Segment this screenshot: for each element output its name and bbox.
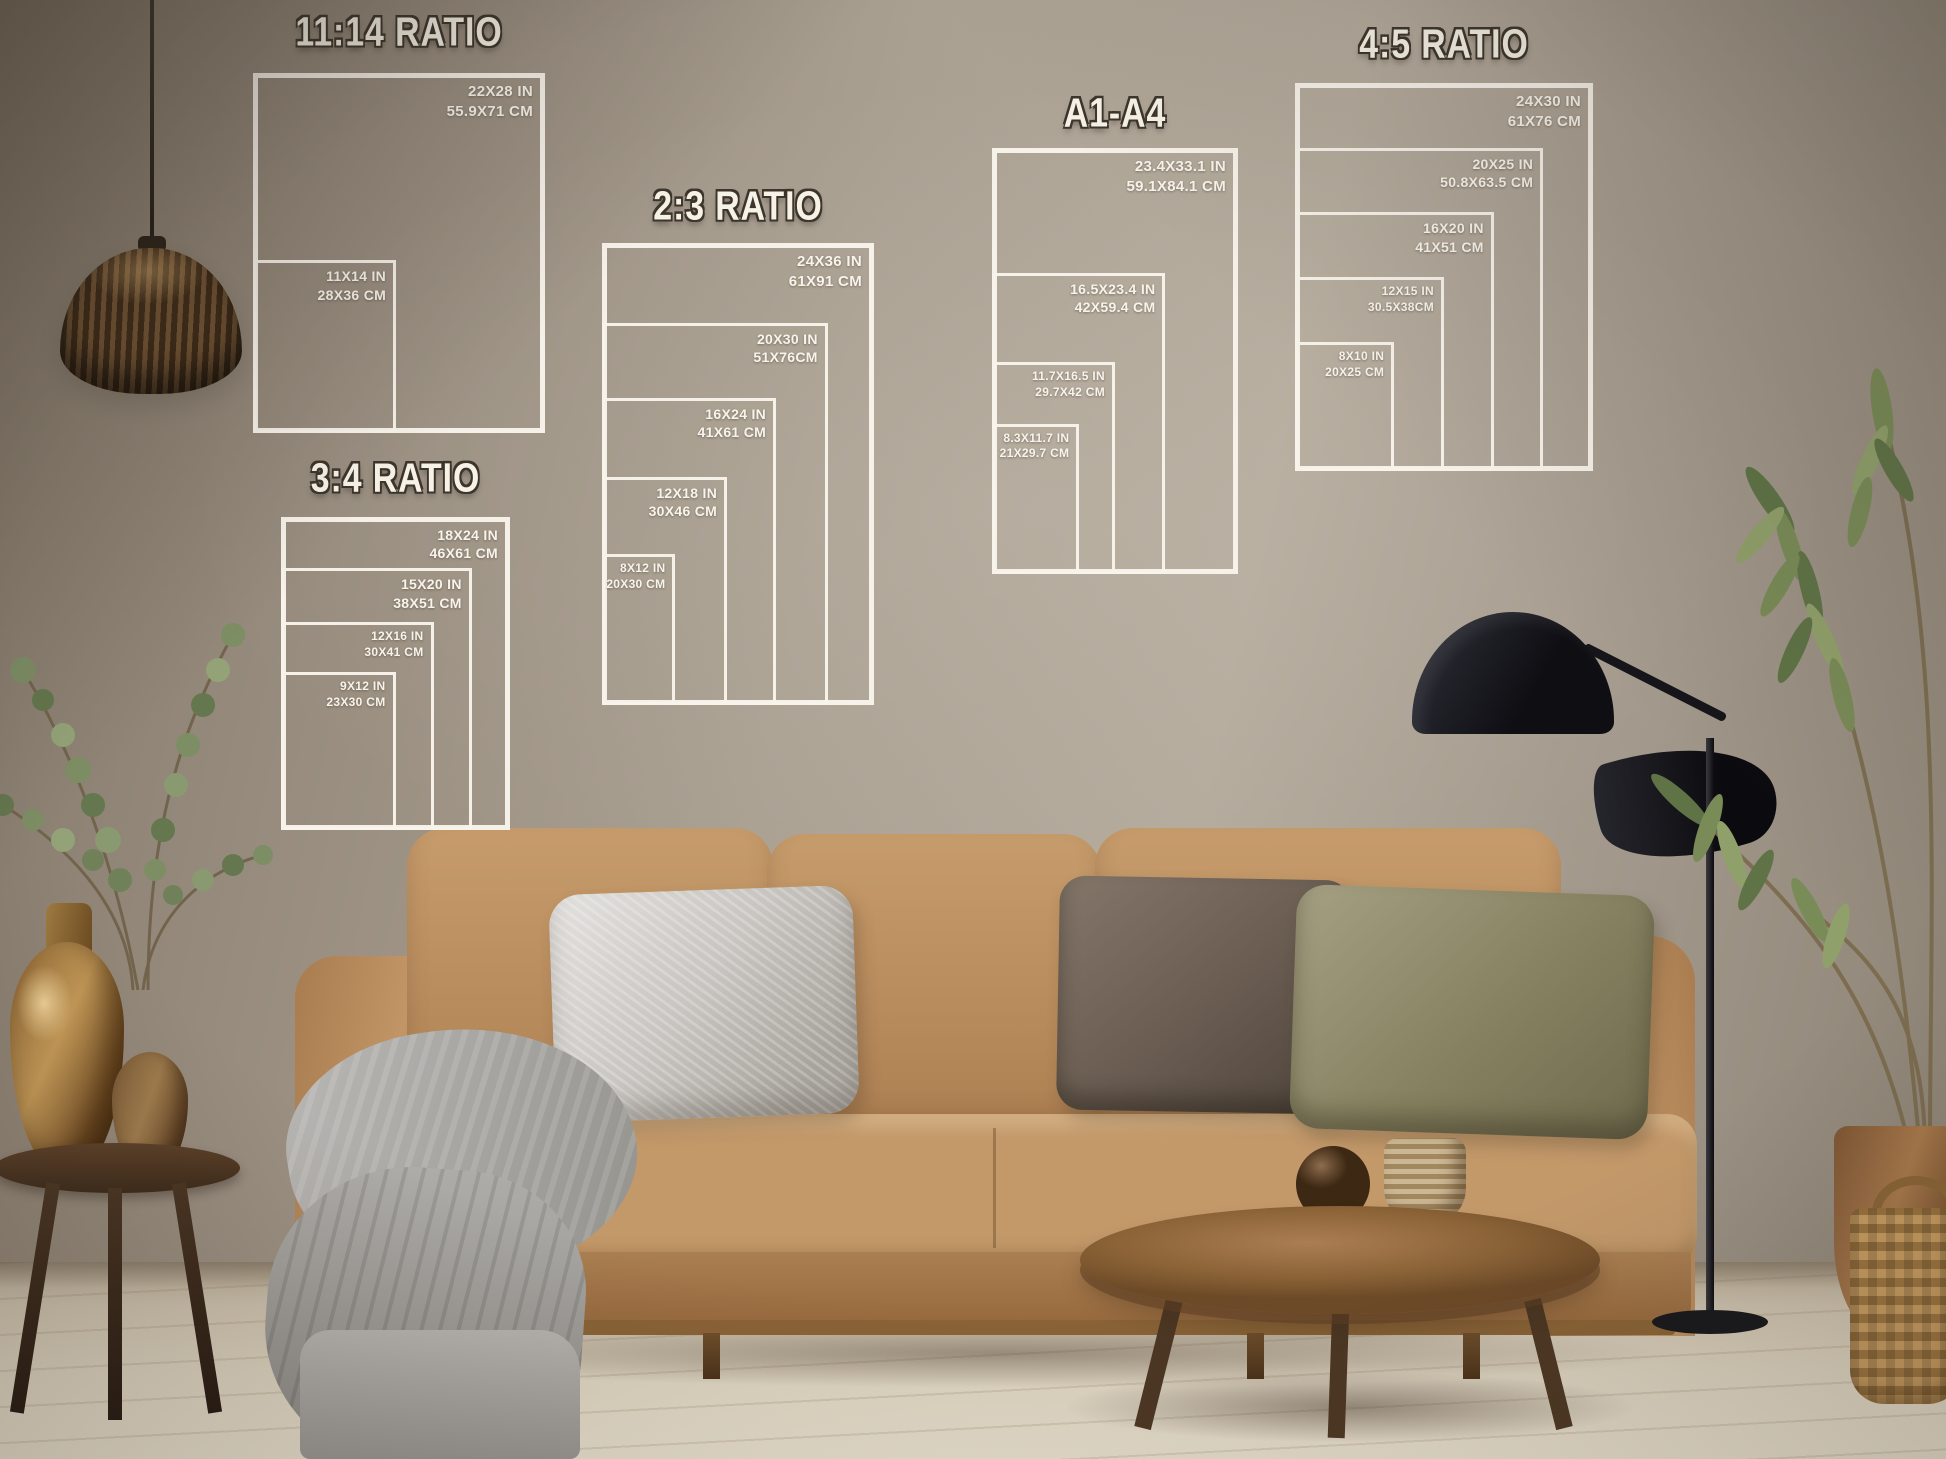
size-cm: 41X61 CM — [698, 423, 767, 441]
size-label: 8X10 IN 20X25 CM — [1325, 349, 1384, 381]
size-label: 12X18 IN 30X46 CM — [649, 484, 718, 521]
chart-title: 2:3 RATIO — [554, 182, 922, 229]
size-in: 20X25 IN — [1440, 155, 1533, 173]
plant-left — [0, 540, 278, 990]
size-in: 20X30 IN — [753, 330, 817, 348]
size-cm: 46X61 CM — [429, 544, 498, 562]
size-cm: 30X46 CM — [649, 502, 718, 520]
size-in: 23.4X33.1 IN — [1127, 157, 1227, 177]
size-rect-a4: 8.3X11.7 IN 21X29.7 CM — [992, 424, 1079, 574]
chart-title: A1-A4 — [943, 89, 1287, 136]
size-cm: 30.5X38CM — [1368, 300, 1434, 316]
size-label: 23.4X33.1 IN 59.1X84.1 CM — [1127, 157, 1227, 197]
size-chart-4-5: 4:5 RATIO 24X30 IN 61X76 CM 20X25 IN 50.… — [1295, 83, 1593, 471]
size-cm: 41X51 CM — [1415, 238, 1484, 256]
size-label: 15X20 IN 38X51 CM — [393, 575, 462, 612]
size-in: 12X15 IN — [1368, 284, 1434, 300]
size-cm: 50.8X63.5 CM — [1440, 173, 1533, 191]
size-label: 16X24 IN 41X61 CM — [698, 405, 767, 442]
size-cm: 42X59.4 CM — [1070, 298, 1155, 316]
sofa-wood-rail — [423, 1320, 1675, 1335]
size-cm: 55.9X71 CM — [447, 102, 533, 122]
size-in: 11.7X16.5 IN — [1032, 369, 1105, 385]
size-label: 20X25 IN 50.8X63.5 CM — [1440, 155, 1533, 192]
size-label: 24X36 IN 61X91 CM — [789, 252, 862, 292]
size-in: 24X36 IN — [789, 252, 862, 272]
woven-basket — [1850, 1208, 1946, 1404]
size-label: 12X16 IN 30X41 CM — [364, 629, 423, 661]
size-cm: 30X41 CM — [364, 645, 423, 661]
sofa-leg — [703, 1333, 720, 1379]
wooden-stool — [0, 1143, 240, 1193]
size-in: 22X28 IN — [447, 82, 533, 102]
size-label: 12X15 IN 30.5X38CM — [1368, 284, 1434, 316]
size-in: 16X20 IN — [1415, 219, 1484, 237]
pillow-olive — [1289, 884, 1655, 1140]
size-label: 9X12 IN 23X30 CM — [326, 679, 385, 711]
size-in: 16X24 IN — [698, 405, 767, 423]
size-in: 12X18 IN — [649, 484, 718, 502]
size-cm: 29.7X42 CM — [1032, 385, 1105, 401]
size-in: 8X10 IN — [1325, 349, 1384, 365]
size-label: 16X20 IN 41X51 CM — [1415, 219, 1484, 256]
size-chart-3-4: 3:4 RATIO 18X24 IN 46X61 CM 15X20 IN 38X… — [281, 517, 510, 830]
size-rect-9x12: 9X12 IN 23X30 CM — [281, 672, 396, 830]
size-cm: 51X76CM — [753, 348, 817, 366]
chart-title: 4:5 RATIO — [1248, 20, 1641, 67]
chart-title: 11:14 RATIO — [205, 8, 592, 55]
plant-right — [1620, 350, 1946, 1150]
size-cm: 20X30 CM — [606, 577, 665, 593]
size-cm: 20X25 CM — [1325, 365, 1384, 381]
size-in: 8.3X11.7 IN — [1000, 431, 1070, 447]
size-cm: 21X29.7 CM — [1000, 446, 1070, 462]
size-in: 11X14 IN — [318, 267, 387, 285]
size-chart-a1-a4: A1-A4 23.4X33.1 IN 59.1X84.1 CM 16.5X23.… — [992, 148, 1238, 574]
size-label: 11.7X16.5 IN 29.7X42 CM — [1032, 369, 1105, 401]
size-cm: 59.1X84.1 CM — [1127, 177, 1227, 197]
size-chart-11-14: 11:14 RATIO 22X28 IN 55.9X71 CM 11X14 IN… — [253, 73, 545, 433]
floor-lamp-base — [1652, 1310, 1768, 1334]
size-rect-8x12: 8X12 IN 20X30 CM — [602, 554, 675, 705]
size-in: 15X20 IN — [393, 575, 462, 593]
size-cm: 61X91 CM — [789, 272, 862, 292]
size-cm: 38X51 CM — [393, 594, 462, 612]
size-label: 18X24 IN 46X61 CM — [429, 526, 498, 563]
size-label: 8X12 IN 20X30 CM — [606, 561, 665, 593]
size-label: 20X30 IN 51X76CM — [753, 330, 817, 367]
size-in: 24X30 IN — [1508, 92, 1581, 112]
coffee-table — [1080, 1206, 1600, 1314]
size-chart-2-3: 2:3 RATIO 24X36 IN 61X91 CM 20X30 IN 51X… — [602, 243, 874, 705]
pendant-cord — [150, 0, 154, 252]
throw-blanket — [300, 1330, 580, 1459]
size-rect-11x14: 11X14 IN 28X36 CM — [253, 260, 396, 433]
sofa-leg — [1247, 1333, 1264, 1379]
stool-leg — [108, 1188, 122, 1420]
size-label: 11X14 IN 28X36 CM — [318, 267, 387, 304]
size-label: 8.3X11.7 IN 21X29.7 CM — [1000, 431, 1070, 463]
size-label: 16.5X23.4 IN 42X59.4 CM — [1070, 280, 1155, 317]
sofa-leg — [1463, 1333, 1480, 1379]
living-room-scene: 11:14 RATIO 22X28 IN 55.9X71 CM 11X14 IN… — [0, 0, 1946, 1459]
size-cm: 23X30 CM — [326, 695, 385, 711]
size-in: 18X24 IN — [429, 526, 498, 544]
size-cm: 28X36 CM — [318, 286, 387, 304]
size-cm: 61X76 CM — [1508, 112, 1581, 132]
size-in: 8X12 IN — [606, 561, 665, 577]
size-label: 24X30 IN 61X76 CM — [1508, 92, 1581, 132]
seat-seam — [993, 1128, 996, 1248]
size-rect-8x10: 8X10 IN 20X25 CM — [1295, 342, 1394, 471]
size-in: 12X16 IN — [364, 629, 423, 645]
size-in: 9X12 IN — [326, 679, 385, 695]
chart-title: 3:4 RATIO — [231, 454, 559, 501]
size-label: 22X28 IN 55.9X71 CM — [447, 82, 533, 122]
size-in: 16.5X23.4 IN — [1070, 280, 1155, 298]
